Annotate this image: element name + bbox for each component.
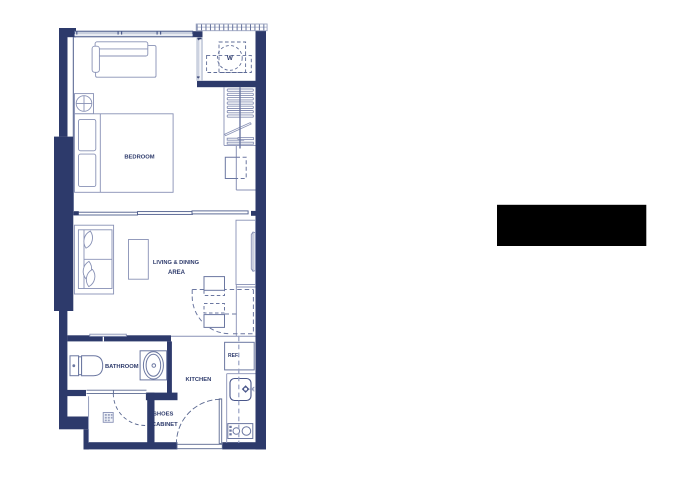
- svg-text:BEDROOM: BEDROOM: [124, 154, 154, 160]
- svg-text:W: W: [227, 55, 233, 62]
- svg-text:BATHROOM: BATHROOM: [105, 364, 139, 370]
- svg-text:SHOES: SHOES: [153, 411, 173, 417]
- svg-text:KITCHEN: KITCHEN: [186, 377, 212, 383]
- svg-text:LIVING & DINING: LIVING & DINING: [153, 260, 200, 266]
- svg-text:AREA: AREA: [168, 270, 186, 276]
- svg-text:CABINET: CABINET: [152, 422, 178, 428]
- svg-text:REF.: REF.: [228, 353, 239, 359]
